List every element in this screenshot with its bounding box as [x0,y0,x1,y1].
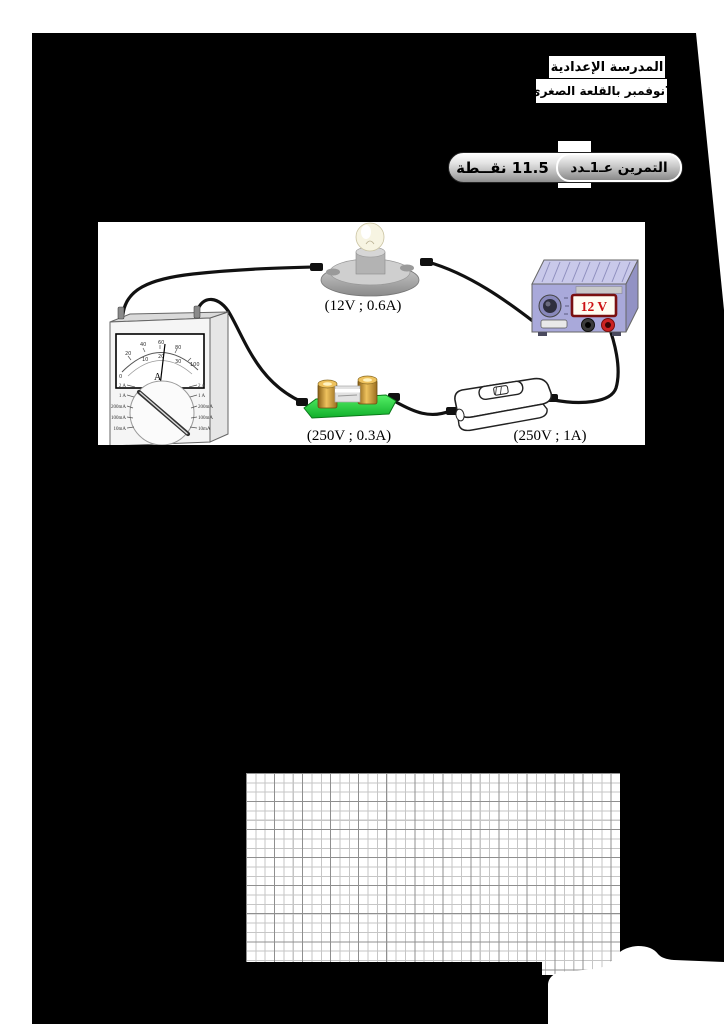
fuse-plug-left [296,398,308,406]
lamp-rating-label: (12V ; 0.6A) [325,298,402,314]
wire-ammeter-to-lamp [123,267,314,314]
power-supply-voltage: 12 V [581,299,608,314]
exercise-badge: 11.5 نقــطة التمرين عـ1ـدد [448,152,683,183]
svg-text:100mA: 100mA [198,416,213,421]
svg-text:200mA: 200mA [111,405,126,410]
power-supply-illustration: 12 V [532,260,638,336]
scale-num: 60 [158,340,164,346]
exercise-points: 11.5 نقــطة [449,159,556,177]
scale-num: 40 [140,342,146,348]
lamp-illustration: (12V ; 0.6A) [310,223,433,314]
scale-num: 20 [125,351,131,357]
fuse-rating-label: (250V ; 0.3A) [307,428,391,444]
svg-text:1 A: 1 A [198,394,205,399]
svg-text:2 A: 2 A [198,384,205,389]
school-name-line1: المدرسة الإعدادية [549,56,665,78]
scale-num: 100 [190,362,200,368]
lamp-plug-left [310,263,323,271]
svg-text:200mA: 200mA [198,405,213,410]
switch-illustration: (250V ; 1A) [446,379,587,444]
svg-text:10mA: 10mA [114,427,127,432]
scale-num: 80 [175,345,181,351]
fuse-illustration: (250V ; 0.3A) [296,376,400,444]
lamp-plug-right [420,258,433,266]
circuit-diagram-panel: 0 20 40 60 80 100 10 20 30 A 2 A 1 A [98,222,645,445]
scanned-document-page: المدرسة الإعدادية 7نوفمبر بالقلعة الصغرى… [0,0,724,1024]
ammeter-terminal-left [118,307,124,319]
scan-black-bar [246,962,542,976]
svg-text:100mA: 100mA [111,416,126,421]
ammeter-illustration: 0 20 40 60 80 100 10 20 30 A 2 A 1 A [110,306,228,445]
lamp-bulb [356,223,384,251]
fuse-glass-tube [335,386,360,402]
svg-text:2 A: 2 A [119,384,126,389]
svg-text:10mA: 10mA [198,427,211,432]
wire-supply-to-switch [554,324,618,402]
scan-white-corner [540,940,724,1024]
scale-num: 10 [142,357,148,363]
scale-num: 0 [119,374,122,380]
scale-num: 30 [175,359,181,365]
exercise-title: التمرين عـ1ـدد [556,153,682,182]
svg-text:1 A: 1 A [119,394,126,399]
wire-switch-to-fuse [396,402,450,414]
school-name-line2: 7نوفمبر بالقلعة الصغرى [536,79,667,103]
ammeter-terminal-right [194,306,200,318]
switch-rating-label: (250V ; 1A) [513,428,586,444]
circuit-illustration: 0 20 40 60 80 100 10 20 30 A 2 A 1 A [98,222,645,445]
